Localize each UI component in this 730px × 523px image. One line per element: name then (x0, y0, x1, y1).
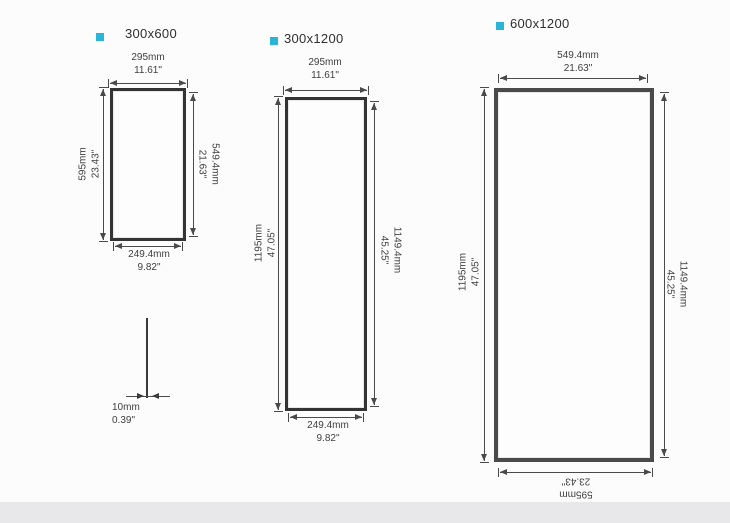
bullet-icon (496, 22, 504, 30)
dim-mm: 1149.4mm (676, 261, 689, 308)
dimension-line-top (110, 83, 186, 84)
tick-icon (283, 86, 284, 95)
footer-band (0, 502, 730, 523)
dim-mm: 549.4mm (557, 50, 599, 63)
tick-icon (370, 101, 379, 102)
tick-icon (108, 79, 109, 88)
dim-mm: 249.4mm (307, 420, 349, 433)
dim-label-top: 549.4mm 21.63" (557, 50, 599, 75)
tick-icon (480, 462, 489, 463)
tick-icon (660, 457, 669, 458)
arrowhead-icon (355, 414, 362, 420)
tick-icon (498, 468, 499, 477)
dim-mm: 10mm (112, 402, 140, 415)
tick-icon (182, 242, 183, 251)
side-profile-line (146, 318, 148, 398)
dim-mm: 549.4mm (208, 143, 221, 185)
dimension-line-left (103, 89, 104, 240)
dimension-line-top (285, 90, 367, 91)
tick-icon (652, 468, 653, 477)
tick-icon (99, 87, 108, 88)
dim-mm: 1195mm (254, 224, 267, 262)
tick-icon (274, 411, 283, 412)
dim-label-bottom: 249.4mm 9.82" (307, 420, 349, 445)
tick-icon (368, 86, 369, 95)
tick-icon (288, 413, 289, 422)
dim-label-left: 595mm 23.43" (78, 147, 103, 180)
dimension-line-right (193, 94, 194, 235)
arrowhead-icon (275, 403, 281, 410)
panel-title: 300x600 (125, 26, 177, 41)
dim-inch: 45.25" (664, 261, 677, 308)
dim-inch: 21.63" (557, 63, 599, 76)
bullet-icon (270, 37, 278, 45)
arrowhead-icon (481, 89, 487, 96)
dim-inch: 47.05" (266, 224, 279, 262)
dimension-line-right (374, 103, 375, 405)
tick-icon (647, 74, 648, 83)
tick-icon (274, 96, 283, 97)
dim-inch: 23.43" (90, 147, 103, 180)
tick-icon (480, 87, 489, 88)
dimension-line-bottom (500, 472, 651, 473)
thickness-dimension-line (126, 396, 170, 397)
dim-mm: 595mm (559, 487, 592, 500)
dim-label-right: 549.4mm 21.63" (196, 143, 221, 185)
tick-icon (189, 236, 198, 237)
arrowhead-icon (360, 87, 367, 93)
arrowhead-icon (285, 87, 292, 93)
panel-outline (494, 88, 654, 462)
arrowhead-icon (481, 454, 487, 461)
dim-label-right: 1149.4mm 45.25" (664, 261, 689, 308)
dim-label-bottom: 249.4mm 9.82" (128, 249, 170, 274)
thickness-label: 10mm 0.39" (112, 402, 140, 427)
tick-icon (189, 92, 198, 93)
dim-inch: 11.61" (308, 70, 341, 83)
dimension-line-bottom (115, 246, 181, 247)
dim-inch: 23.43" (559, 475, 592, 488)
tick-icon (370, 406, 379, 407)
arrowhead-icon (661, 94, 667, 101)
panel-outline (285, 97, 367, 411)
arrowhead-icon (100, 233, 106, 240)
dim-label-bottom: 595mm 23.43" (559, 475, 592, 500)
panel-title: 600x1200 (510, 16, 570, 31)
arrowhead-icon (110, 80, 117, 86)
tick-icon (498, 74, 499, 83)
diagram-canvas: 300x600 295mm 11.61" 595mm 23.43" 549.4m… (0, 0, 730, 523)
tick-icon (660, 92, 669, 93)
dim-inch: 21.63" (196, 143, 209, 185)
dimension-line-bottom (290, 417, 362, 418)
arrowhead-icon (275, 98, 281, 105)
tick-icon (113, 242, 114, 251)
arrowhead-icon (174, 243, 181, 249)
arrowhead-icon (152, 393, 159, 399)
arrowhead-icon (371, 103, 377, 110)
dim-label-top: 295mm 11.61" (308, 57, 341, 82)
arrowhead-icon (115, 243, 122, 249)
arrowhead-icon (500, 469, 507, 475)
dim-label-left: 1195mm 47.05" (254, 224, 279, 262)
dim-inch: 9.82" (307, 433, 349, 446)
dim-label-right: 1149.4mm 45.25" (378, 227, 403, 274)
tick-icon (187, 79, 188, 88)
tick-icon (99, 241, 108, 242)
bullet-icon (96, 33, 104, 41)
dim-inch: 9.82" (128, 262, 170, 275)
arrowhead-icon (644, 469, 651, 475)
panel-title: 300x1200 (284, 31, 344, 46)
dimension-line-top (500, 78, 646, 79)
arrowhead-icon (190, 228, 196, 235)
arrowhead-icon (500, 75, 507, 81)
dim-label-left: 1195mm 47.05" (458, 253, 483, 291)
tick-icon (363, 413, 364, 422)
dim-inch: 11.61" (131, 65, 164, 78)
dim-mm: 1149.4mm (390, 227, 403, 274)
dim-inch: 45.25" (378, 227, 391, 274)
arrowhead-icon (137, 393, 144, 399)
dim-mm: 295mm (131, 52, 164, 65)
arrowhead-icon (639, 75, 646, 81)
dim-inch: 47.05" (470, 253, 483, 291)
dim-mm: 1195mm (458, 253, 471, 291)
arrowhead-icon (290, 414, 297, 420)
dim-mm: 595mm (78, 147, 91, 180)
arrowhead-icon (661, 449, 667, 456)
arrowhead-icon (190, 94, 196, 101)
dim-mm: 295mm (308, 57, 341, 70)
arrowhead-icon (100, 89, 106, 96)
dimension-line-left (484, 89, 485, 461)
dim-inch: 0.39" (112, 415, 140, 428)
dim-mm: 249.4mm (128, 249, 170, 262)
arrowhead-icon (179, 80, 186, 86)
dim-label-top: 295mm 11.61" (131, 52, 164, 77)
arrowhead-icon (371, 398, 377, 405)
panel-outline (110, 88, 186, 241)
